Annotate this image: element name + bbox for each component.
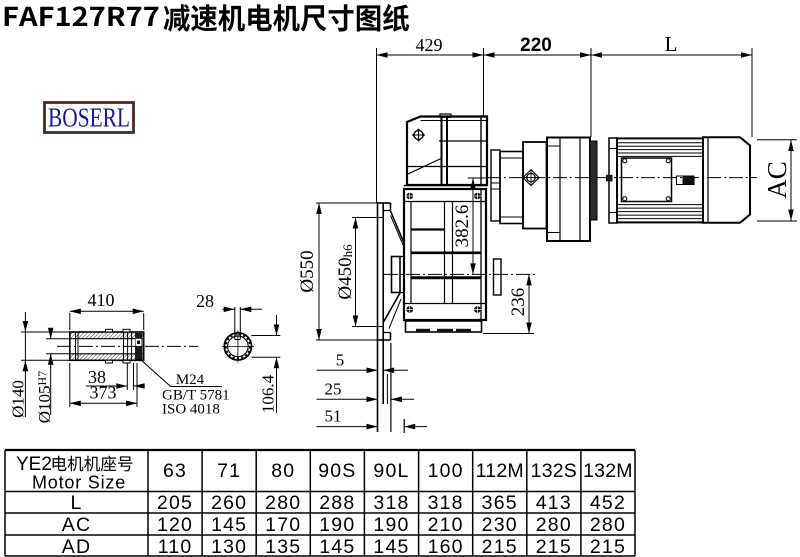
svg-text:190: 190: [373, 514, 409, 536]
svg-text:90S: 90S: [318, 460, 356, 482]
svg-text:BOSERL: BOSERL: [48, 103, 130, 133]
svg-text:190: 190: [319, 514, 355, 536]
svg-text:215: 215: [482, 536, 518, 557]
svg-text:AD: AD: [62, 536, 92, 557]
svg-text:145: 145: [319, 536, 355, 557]
svg-text:145: 145: [211, 514, 247, 536]
svg-text:429: 429: [416, 35, 443, 55]
svg-text:160: 160: [428, 536, 464, 557]
svg-text:215: 215: [536, 536, 572, 557]
svg-text:132S: 132S: [531, 460, 577, 482]
svg-text:AC: AC: [762, 161, 792, 199]
svg-text:365: 365: [482, 492, 518, 514]
svg-text:Motor Size: Motor Size: [32, 473, 126, 493]
svg-text:230: 230: [482, 514, 518, 536]
svg-text:318: 318: [428, 492, 464, 514]
svg-text:280: 280: [536, 514, 572, 536]
svg-text:AC: AC: [62, 514, 92, 536]
svg-text:132M: 132M: [583, 460, 633, 482]
svg-text:51: 51: [325, 407, 342, 426]
svg-text:135: 135: [265, 536, 301, 557]
svg-text:110: 110: [158, 536, 193, 557]
svg-text:80: 80: [271, 460, 295, 482]
svg-text:288: 288: [319, 492, 355, 514]
svg-text:L: L: [665, 32, 678, 56]
svg-text:M24: M24: [176, 372, 205, 388]
svg-text:112M: 112M: [476, 460, 524, 482]
svg-text:28: 28: [196, 291, 214, 311]
svg-text:280: 280: [265, 492, 301, 514]
svg-text:382.6: 382.6: [452, 205, 473, 248]
svg-text:413: 413: [536, 492, 572, 514]
svg-text:373: 373: [90, 383, 117, 403]
svg-text:90L: 90L: [373, 460, 409, 482]
svg-text:170: 170: [265, 514, 301, 536]
svg-text:63: 63: [163, 460, 187, 482]
svg-text:452: 452: [590, 492, 626, 514]
svg-text:220: 220: [520, 35, 552, 56]
svg-text:318: 318: [373, 492, 409, 514]
svg-text:ISO 4018: ISO 4018: [162, 402, 220, 418]
svg-text:120: 120: [157, 514, 193, 536]
svg-text:410: 410: [88, 290, 115, 310]
svg-text:5: 5: [336, 351, 345, 370]
svg-text:Ø140: Ø140: [9, 380, 28, 418]
svg-text:71: 71: [217, 460, 241, 482]
svg-text:25: 25: [325, 380, 342, 399]
svg-text:236: 236: [508, 288, 529, 317]
svg-text:106.4: 106.4: [259, 374, 278, 413]
svg-text:130: 130: [211, 536, 247, 557]
svg-text:215: 215: [590, 536, 626, 557]
svg-text:100: 100: [428, 460, 464, 482]
svg-text:260: 260: [211, 492, 247, 514]
svg-text:280: 280: [590, 514, 626, 536]
svg-text:L: L: [70, 492, 82, 514]
svg-text:210: 210: [428, 514, 464, 536]
svg-text:205: 205: [157, 492, 193, 514]
svg-text:Ø550: Ø550: [297, 250, 318, 292]
svg-text:145: 145: [373, 536, 409, 557]
